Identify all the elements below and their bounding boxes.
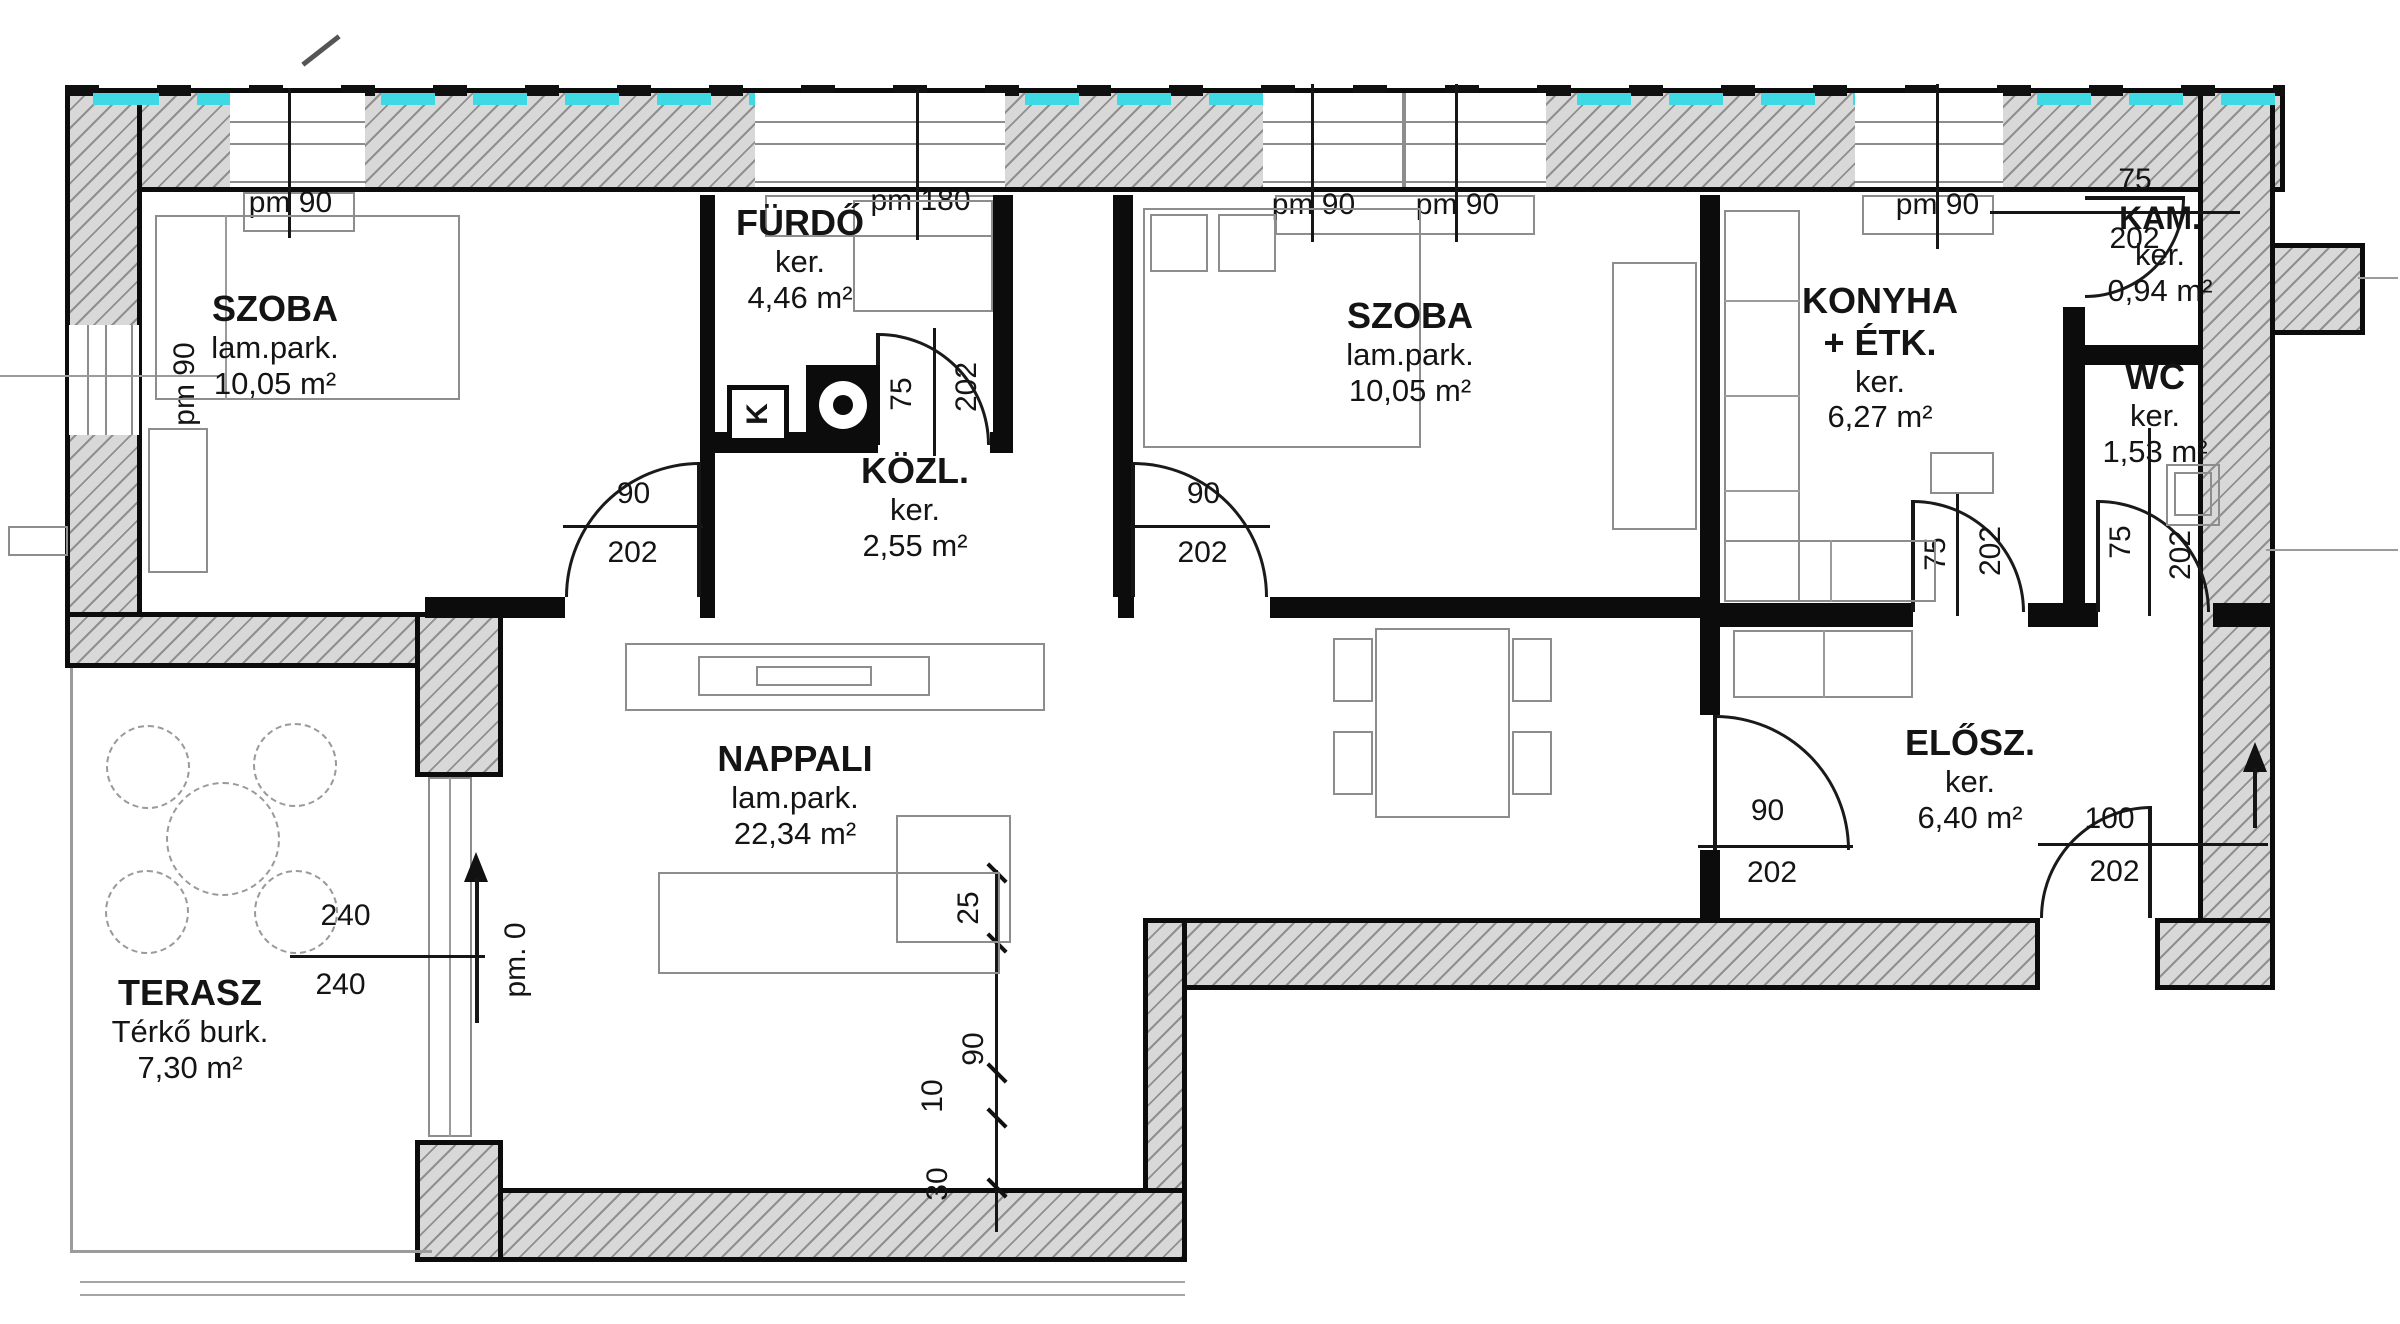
room-floor: lam.park.	[140, 330, 410, 366]
room-floor: ker.	[2085, 237, 2235, 273]
wall-terasz-column-b	[415, 1140, 503, 1262]
window-szoba2	[1263, 93, 1546, 187]
door-wc-width: 75	[2104, 502, 2138, 582]
wall-terasz-top	[65, 612, 460, 668]
room-label-elosz: ELŐSZ. ker. 6,40 m²	[1845, 722, 2095, 836]
room-label-szoba1: SZOBA lam.park. 10,05 m²	[140, 288, 410, 402]
boiler-box: K	[727, 385, 789, 443]
wall-south-nappali	[415, 1188, 1187, 1262]
chair	[1512, 638, 1552, 702]
wall-konyha-elosz-a	[1720, 603, 1913, 627]
door-szoba2-height: 202	[1155, 536, 1250, 570]
room-name: SZOBA	[140, 288, 410, 330]
door-szoba1-height: 202	[585, 536, 680, 570]
door-kam-width: 75	[2100, 163, 2170, 197]
door-leaf-wc	[2096, 500, 2100, 612]
door-furdo-width: 75	[885, 354, 919, 434]
room-floor: ker.	[1845, 764, 2095, 800]
room-label-furdo: FÜRDŐ ker. 4,46 m²	[700, 202, 900, 316]
room-name: KAM.	[2085, 200, 2235, 237]
room-floor: lam.park.	[675, 780, 915, 816]
terrace-table	[166, 782, 280, 896]
room-area: 1,53 m²	[2085, 434, 2225, 470]
chair	[1512, 731, 1552, 795]
room-floor: ker.	[2085, 398, 2225, 434]
room-area: 0,94 m²	[2085, 273, 2235, 309]
room-label-kozl: KÖZL. ker. 2,55 m²	[835, 450, 995, 564]
wall-right-notch	[2270, 243, 2365, 335]
room-area: 10,05 m²	[140, 366, 410, 402]
room-area: 4,46 m²	[700, 280, 900, 316]
room-area: 22,34 m²	[675, 816, 915, 852]
room-label-terasz: TERASZ Térkő burk. 7,30 m²	[60, 972, 320, 1086]
wall-nappali-konyha-a	[1700, 195, 1720, 715]
door-leaf-szoba1	[697, 462, 701, 597]
wall-kozl-szoba2	[1113, 195, 1133, 597]
room-name: FÜRDŐ	[700, 202, 900, 244]
door-leaf-elosz	[1713, 715, 1717, 850]
room-name: SZOBA	[1280, 295, 1540, 337]
window-label-konyha: pm 90	[1860, 188, 2015, 222]
wall-furdo-right	[993, 195, 1013, 432]
terrace-chair	[106, 725, 190, 809]
room-name: ELŐSZ.	[1845, 722, 2095, 764]
door-konyha-height: 202	[1974, 511, 2008, 591]
wall-konyha-elosz-b	[2028, 603, 2098, 627]
wall-szoba-row-south-c	[1118, 597, 1134, 618]
dining-table	[1375, 628, 1510, 818]
wardrobe-szoba2	[1612, 262, 1697, 530]
chair	[1333, 638, 1373, 702]
window-furdo	[755, 93, 1005, 187]
wall-nappali-konyha-b	[1700, 850, 1720, 918]
door-arc-elosz	[1715, 715, 1850, 850]
wall-szoba-row-south-a	[425, 597, 565, 618]
room-floor: ker.	[700, 244, 900, 280]
wall-south-elosz-b	[2155, 918, 2275, 990]
door-elosz-width: 90	[1730, 794, 1805, 828]
window-left-wall	[69, 325, 139, 435]
window-szoba1	[230, 93, 365, 187]
terrace-edge-left	[70, 668, 73, 1253]
room-label-konyha: KONYHA + ÉTK. ker. 6,27 m²	[1765, 280, 1995, 435]
room-name: NAPPALI	[675, 738, 915, 780]
window-konyha	[1855, 93, 2003, 187]
outdoor-tap	[8, 526, 68, 556]
wall-konyha-elosz-c	[2213, 603, 2275, 627]
terrace-chair	[253, 723, 337, 807]
room-area: 7,30 m²	[60, 1050, 320, 1086]
room-label-szoba2: SZOBA lam.park. 10,05 m²	[1280, 295, 1540, 409]
room-area: 10,05 m²	[1280, 373, 1540, 409]
room-name: TERASZ	[60, 972, 320, 1014]
room-floor: Térkő burk.	[60, 1014, 320, 1050]
floor-plan: 90 202 90 202 75 202 75 202 75 202 75 20…	[0, 0, 2400, 1324]
room-floor: ker.	[1765, 364, 1995, 400]
chain-30: 30	[921, 1144, 955, 1224]
room-floor: ker.	[835, 492, 995, 528]
chain-90: 90	[957, 1009, 991, 1089]
wall-terasz-column-a	[415, 612, 503, 777]
wall-south-elosz-a	[1143, 918, 2040, 990]
room-area: 6,40 m²	[1845, 800, 2095, 836]
room-name: KONYHA	[1765, 280, 1995, 322]
room-label-kam: KAM. ker. 0,94 m²	[2085, 200, 2235, 309]
door-elosz-height: 202	[1722, 856, 1822, 890]
leader-mark	[301, 34, 340, 66]
room-name: KÖZL.	[835, 450, 995, 492]
room-name: WC	[2085, 356, 2225, 398]
wardrobe-szoba1	[148, 428, 208, 573]
wall-konyha-kam	[2063, 307, 2085, 603]
door-szoba2-width: 90	[1166, 477, 1241, 511]
door-furdo-height: 202	[950, 347, 984, 427]
level-label: pm. 0	[499, 910, 533, 1010]
room-area: 6,27 m²	[1765, 399, 1995, 435]
room-label-wc: WC ker. 1,53 m²	[2085, 356, 2225, 470]
boiler-label: K	[741, 403, 775, 425]
wall-szoba-row-south-d	[1270, 597, 1702, 618]
room-name2: + ÉTK.	[1765, 322, 1995, 364]
kitchen-cabinet	[1930, 452, 1994, 494]
door-leaf-szoba2	[1131, 462, 1135, 597]
room-area: 2,55 m²	[835, 528, 995, 564]
door-entrance-height: 202	[2067, 855, 2162, 889]
terrace-chair	[254, 870, 338, 954]
terrace-chair	[105, 870, 189, 954]
door-szoba1-width: 90	[596, 477, 671, 511]
terrace-edge-bottom	[70, 1250, 432, 1253]
room-label-nappali: NAPPALI lam.park. 22,34 m²	[675, 738, 915, 852]
chair	[1333, 731, 1373, 795]
chain-10: 10	[916, 1056, 950, 1136]
door-wc-height: 202	[2164, 515, 2198, 595]
room-floor: lam.park.	[1280, 337, 1540, 373]
